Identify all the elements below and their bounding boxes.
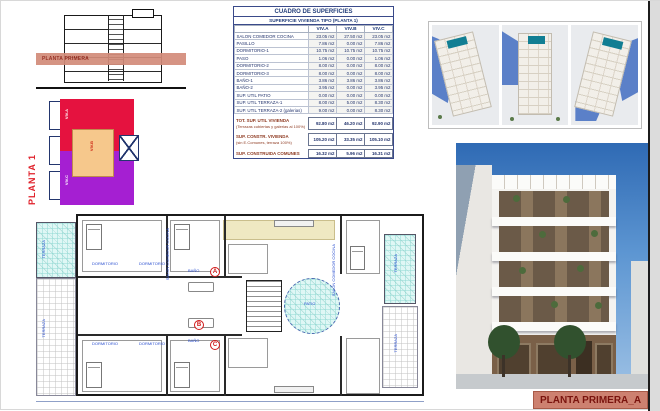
key-plan-title: PLANTA 1	[27, 101, 37, 205]
room-living	[346, 338, 380, 394]
table-cell: 8.30 m2	[365, 107, 393, 114]
plan-sheet: PLANTA PRIMERA PLANTA 1 VIV.A VIV.B VIV.…	[0, 0, 660, 410]
col-header-viv-a: VIV.A	[309, 26, 337, 33]
table-cell: 8.00 m2	[365, 70, 393, 77]
bed	[350, 246, 365, 270]
table-cell: 3.86 m2	[365, 77, 393, 84]
balcony-plant	[563, 196, 570, 203]
kitchen-counter	[274, 220, 314, 227]
roof-pool	[528, 36, 546, 44]
stair-core	[246, 280, 282, 332]
table-cell: SALON COMEDOR COCINA	[235, 33, 309, 40]
partition-wall	[224, 334, 226, 396]
key-plan-zone-viv-b	[72, 129, 114, 177]
room-bath	[228, 338, 268, 368]
room-label: DORMITORIO	[139, 262, 165, 267]
table-cell: 105.10 m2	[365, 134, 393, 146]
table-cell: 7.86 m2	[365, 40, 393, 47]
render-building	[574, 31, 632, 116]
table-cell: 23.05 m2	[365, 33, 393, 40]
bed	[86, 362, 102, 388]
table-cell: 0.00 m2	[337, 62, 365, 69]
table-row: PASILLO7.86 m20.00 m27.86 m2	[235, 40, 393, 47]
partition-wall	[340, 216, 342, 274]
building-section-drawing: PLANTA PRIMERA	[36, 9, 186, 97]
floor-recess	[499, 296, 609, 322]
roof-pool	[601, 37, 623, 50]
table-cell: 0.00 m2	[337, 84, 365, 91]
table-row: SALON COMEDOR COCINA23.05 m227.50 m223.0…	[235, 33, 393, 40]
table-cell: BAÑO-1	[235, 77, 309, 84]
table-cell: 5.96 m2	[337, 150, 365, 157]
room-bath	[228, 244, 268, 274]
table-cell: DORMITORIO-3	[235, 70, 309, 77]
table-cell: 0.00 m2	[337, 107, 365, 114]
terrace-hatched-right	[384, 234, 416, 304]
table-cell: 105.20 m2	[309, 134, 337, 146]
table-cell: 16.32 m2	[309, 150, 337, 157]
surfaces-table: CUADRO DE SUPERFICIES SUPERFICIE VIVIEND…	[233, 6, 394, 159]
terrace-gridded-right	[382, 306, 418, 388]
table-cell: 1.06 m2	[309, 55, 337, 62]
table-cell: 8.30 m2	[365, 99, 393, 106]
table-row: SUP. UTIL TERRAZA-2 (galerias)9.00 m20.0…	[235, 107, 393, 114]
table-row: DORMITORIO-110.75 m210.75 m210.75 m2	[235, 47, 393, 54]
table-cell: 10.75 m2	[365, 47, 393, 54]
surfaces-table-body: SALON COMEDOR COCINA23.05 m227.50 m223.0…	[235, 33, 393, 158]
balcony-slab	[492, 217, 616, 226]
table-cell: TOT. SUP. UTIL VIVIENDA(Terrazas cubiert…	[235, 118, 309, 130]
balcony-plant	[519, 267, 526, 274]
room-label: SALON COMEDOR COCINA	[332, 244, 337, 296]
table-cell: BAÑO-2	[235, 84, 309, 91]
table-cell: 9.00 m2	[309, 107, 337, 114]
dimension-line	[36, 401, 424, 402]
table-cell: SUP. UTIL PATIO	[235, 92, 309, 99]
aerial-render-left	[432, 25, 499, 125]
col-header-viv-c: VIV.C	[365, 26, 393, 33]
aerial-render-center	[502, 25, 569, 125]
render-tree	[438, 115, 442, 119]
room-label: TERRAZA	[394, 334, 399, 353]
balcony-plant	[539, 231, 546, 238]
table-cell: 5.00 m2	[337, 99, 365, 106]
kitchen-counter	[274, 386, 314, 393]
section-highlight-band: PLANTA PRIMERA	[36, 53, 186, 65]
table-cell: 27.50 m2	[337, 33, 365, 40]
table-total-row: SUP. CONSTR. VIVIENDA(sin E.Comunes, ter…	[235, 134, 393, 146]
balcony-slab	[492, 287, 616, 296]
table-cell: 8.00 m2	[365, 62, 393, 69]
roof-parapet	[492, 175, 616, 189]
table-cell: 0.00 m2	[309, 92, 337, 99]
table-cell: 46.20 m2	[337, 118, 365, 130]
table-total-row: TOT. SUP. UTIL VIVIENDA(Terrazas cubiert…	[235, 118, 393, 130]
apartment-marker-b: B	[194, 320, 204, 330]
street-tree	[486, 325, 522, 377]
table-cell: 3.86 m2	[337, 77, 365, 84]
table-cell: SUP. CONSTRUIDA COMUNES	[235, 150, 309, 157]
render-building	[518, 33, 553, 115]
table-cell: PASO	[235, 55, 309, 62]
table-cell: 8.00 m2	[309, 62, 337, 69]
surfaces-grid: VIV.A VIV.B VIV.C SALON COMEDOR COCINA23…	[234, 25, 393, 158]
table-cell: DORMITORIO-1	[235, 47, 309, 54]
bed	[174, 224, 190, 250]
room-label: DORMITORIO	[92, 262, 118, 267]
table-cell: DORMITORIO-2	[235, 62, 309, 69]
table-row: SUP. UTIL TERRAZA-18.00 m25.00 m28.30 m2	[235, 99, 393, 106]
balcony-plant	[551, 301, 558, 308]
section-roof-bulkhead	[132, 9, 154, 18]
room-label: BAÑO	[188, 339, 199, 344]
balcony-plant	[591, 230, 598, 237]
render-building	[434, 31, 492, 116]
table-cell: PASILLO	[235, 40, 309, 47]
table-cell: 0.00 m2	[337, 40, 365, 47]
plan-outer-walls	[76, 214, 424, 396]
col-header-viv-b: VIV.B	[337, 26, 365, 33]
room-label: SALON COMEDOR COCINA	[166, 228, 171, 280]
table-row: BAÑO-23.95 m20.00 m23.95 m2	[235, 84, 393, 91]
sheet-title-badge: PLANTA PRIMERA_A	[533, 391, 648, 409]
table-cell: 23.05 m2	[309, 33, 337, 40]
floor-recess	[499, 226, 609, 252]
table-cell: 10.75 m2	[309, 47, 337, 54]
bed	[174, 362, 190, 388]
table-cell: 0.00 m2	[337, 70, 365, 77]
sofa	[188, 282, 214, 292]
section-band-label: PLANTA PRIMERA	[36, 56, 89, 62]
section-stair-core	[108, 15, 124, 81]
floor-recess	[499, 261, 609, 287]
table-cell: 7.86 m2	[309, 40, 337, 47]
table-total-row: SUP. CONSTRUIDA COMUNES16.32 m25.96 m216…	[235, 150, 393, 157]
table-row: PASO1.06 m20.00 m21.06 m2	[235, 55, 393, 62]
table-cell: 3.86 m2	[309, 77, 337, 84]
sheet-margin-strip	[650, 1, 660, 411]
table-cell: 8.00 m2	[309, 70, 337, 77]
bed	[86, 224, 102, 250]
render-tree	[556, 117, 560, 121]
partition-wall	[166, 334, 168, 396]
table-cell: 16.31 m2	[365, 150, 393, 157]
facade-render	[456, 143, 649, 389]
table-cell: 33.35 m2	[337, 134, 365, 146]
aerial-renders-panel	[428, 21, 642, 129]
floor-recess	[499, 191, 609, 217]
render-tree	[510, 117, 514, 121]
room-label: PATIO	[304, 302, 315, 307]
balcony-plant	[595, 302, 602, 309]
apartment-marker-c: C	[210, 340, 220, 350]
col-header-room	[235, 26, 309, 33]
room-label: TERRAZA	[394, 254, 399, 273]
neighbor-building-right	[631, 261, 649, 389]
balcony-plant	[577, 265, 584, 272]
key-plan: PLANTA 1 VIV.A VIV.B VIV.C	[31, 93, 147, 211]
section-ground-line	[36, 87, 186, 89]
partition-wall	[78, 334, 242, 336]
room-label: BAÑO	[188, 269, 199, 274]
table-cell: 0.00 m2	[365, 92, 393, 99]
table-cell: 10.75 m2	[337, 47, 365, 54]
balcony-plant	[513, 195, 520, 202]
table-cell: SUP. CONSTR. VIVIENDA(sin E.Comunes, ter…	[235, 134, 309, 146]
table-cell: 0.00 m2	[337, 55, 365, 62]
table-cell: 3.95 m2	[309, 84, 337, 91]
table-row: DORMITORIO-28.00 m20.00 m28.00 m2	[235, 62, 393, 69]
table-cell: SUP. UTIL TERRAZA-2 (galerias)	[235, 107, 309, 114]
room-label: TERRAZA	[42, 240, 47, 259]
room-label: DORMITORIO	[92, 342, 118, 347]
table-cell: 8.00 m2	[309, 99, 337, 106]
table-cell: 0.00 m2	[337, 92, 365, 99]
table-cell: SUP. UTIL TERRAZA-1	[235, 99, 309, 106]
balcony-slab	[492, 252, 616, 261]
floor-plan: TERRAZATERRAZADORMITORIODORMITORIODORMIT…	[36, 214, 424, 404]
partition-wall	[340, 336, 342, 396]
key-plan-label-viv-a: VIV.A	[64, 109, 69, 119]
table-cell: 3.95 m2	[365, 84, 393, 91]
table-cell: 92.90 m2	[365, 118, 393, 130]
street-tree	[552, 325, 588, 377]
roof-pool	[446, 36, 468, 49]
partition-wall	[224, 216, 226, 276]
key-plan-label-viv-c: VIV.C	[64, 175, 69, 185]
apartment-marker-a: A	[210, 267, 220, 277]
key-plan-stair-icon	[119, 135, 139, 161]
aerial-render-right	[571, 25, 638, 125]
table-subtitle: SUPERFICIE VIVIENDA TIPO (PLANTA 1)	[234, 17, 393, 25]
room-label: DORMITORIO	[139, 342, 165, 347]
table-row: DORMITORIO-38.00 m20.00 m28.00 m2	[235, 70, 393, 77]
table-cell: 92.80 m2	[309, 118, 337, 130]
table-row: BAÑO-13.86 m23.86 m23.86 m2	[235, 77, 393, 84]
table-cell: 1.06 m2	[365, 55, 393, 62]
table-row: SUP. UTIL PATIO0.00 m20.00 m20.00 m2	[235, 92, 393, 99]
table-title: CUADRO DE SUPERFICIES	[234, 7, 393, 17]
key-plan-label-viv-b: VIV.B	[89, 141, 94, 151]
room-label: TERRAZA	[42, 319, 47, 338]
